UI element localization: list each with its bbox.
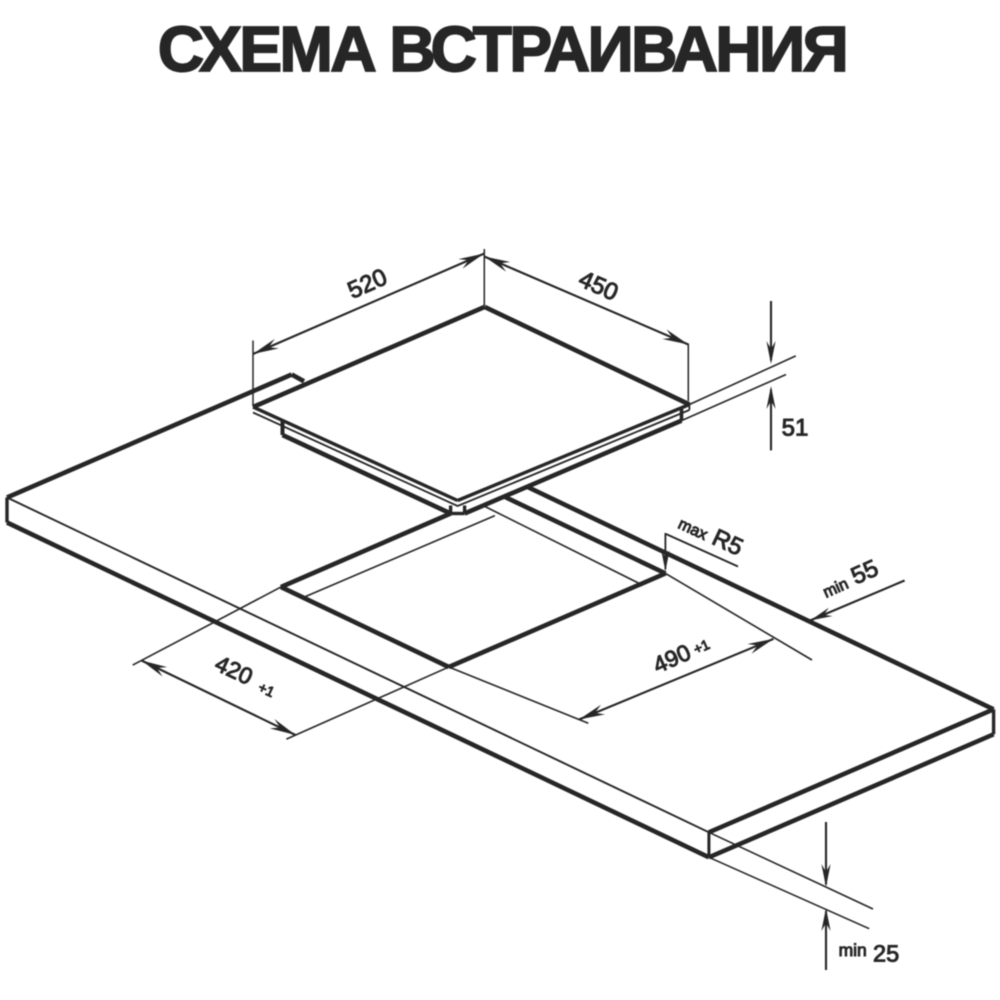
svg-text:25: 25: [873, 941, 899, 967]
svg-text:СХЕМА ВСТРАИВАНИЯ: СХЕМА ВСТРАИВАНИЯ: [158, 13, 846, 85]
svg-text:min: min: [839, 940, 867, 960]
svg-text:51: 51: [782, 415, 809, 442]
